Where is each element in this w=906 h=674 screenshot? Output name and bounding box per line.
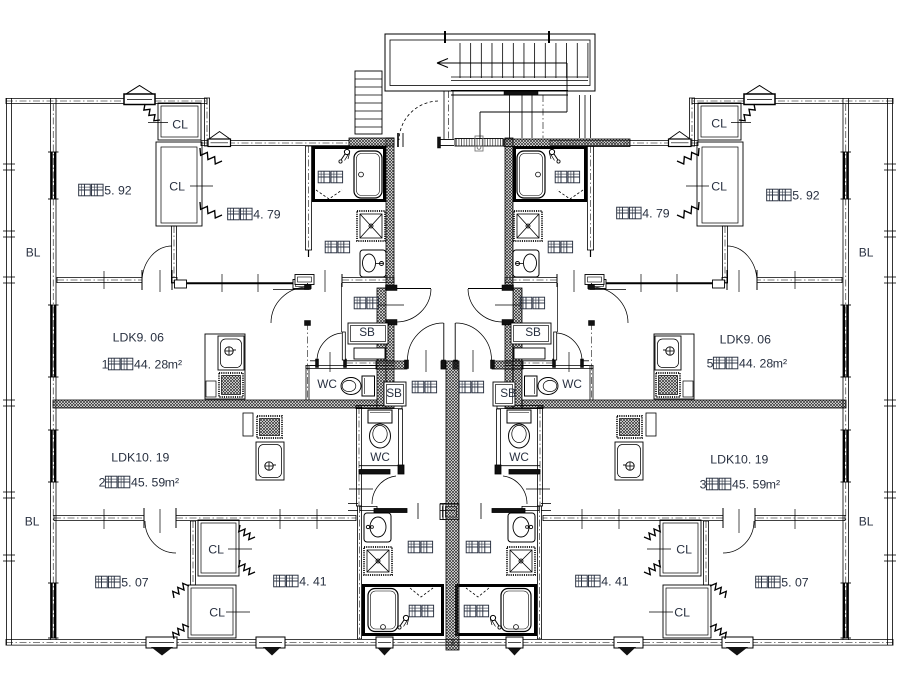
svg-text:CL: CL	[676, 542, 692, 556]
svg-text:WC: WC	[370, 450, 390, 464]
svg-text:5. 07: 5. 07	[121, 575, 149, 589]
svg-text:CL: CL	[172, 117, 188, 131]
svg-text:WC: WC	[562, 377, 582, 391]
svg-text:SB: SB	[359, 325, 375, 339]
svg-text:1: 1	[102, 357, 109, 371]
svg-text:5: 5	[707, 356, 714, 370]
svg-text:4. 41: 4. 41	[601, 574, 629, 588]
svg-text:5. 92: 5. 92	[792, 188, 820, 202]
svg-text:LDK10. 19: LDK10. 19	[111, 450, 169, 464]
svg-text:45. 59: 45. 59	[131, 475, 165, 489]
svg-text:SB: SB	[500, 386, 516, 400]
svg-text:BL: BL	[25, 514, 40, 528]
svg-text:LDK9. 06: LDK9. 06	[113, 330, 164, 344]
svg-text:m²: m²	[165, 475, 179, 489]
svg-text:4. 79: 4. 79	[642, 206, 670, 220]
svg-text:5. 92: 5. 92	[104, 183, 132, 197]
svg-text:CL: CL	[169, 179, 185, 193]
svg-text:CL: CL	[208, 542, 224, 556]
svg-text:4. 79: 4. 79	[253, 207, 281, 221]
svg-text:BL: BL	[859, 245, 874, 259]
svg-text:44. 28: 44. 28	[739, 356, 773, 370]
svg-text:CL: CL	[209, 605, 225, 619]
svg-text:BL: BL	[26, 245, 41, 259]
svg-text:45. 59: 45. 59	[732, 477, 766, 491]
svg-text:m²: m²	[168, 357, 182, 371]
svg-text:2: 2	[99, 475, 106, 489]
svg-text:CL: CL	[711, 179, 727, 193]
svg-text:CL: CL	[674, 605, 690, 619]
svg-text:LDK10. 19: LDK10. 19	[710, 452, 768, 466]
svg-text:4. 41: 4. 41	[299, 574, 327, 588]
svg-text:LDK9. 06: LDK9. 06	[720, 332, 771, 346]
svg-text:SB: SB	[525, 325, 541, 339]
svg-text:m²: m²	[773, 356, 787, 370]
svg-text:SB: SB	[386, 386, 402, 400]
svg-text:WC: WC	[509, 450, 529, 464]
svg-text:3: 3	[700, 477, 707, 491]
svg-text:m²: m²	[766, 477, 780, 491]
svg-text:CL: CL	[711, 116, 727, 130]
svg-text:44. 28: 44. 28	[134, 357, 168, 371]
svg-text:BL: BL	[859, 514, 874, 528]
svg-text:5. 07: 5. 07	[781, 575, 809, 589]
svg-text:WC: WC	[317, 377, 337, 391]
